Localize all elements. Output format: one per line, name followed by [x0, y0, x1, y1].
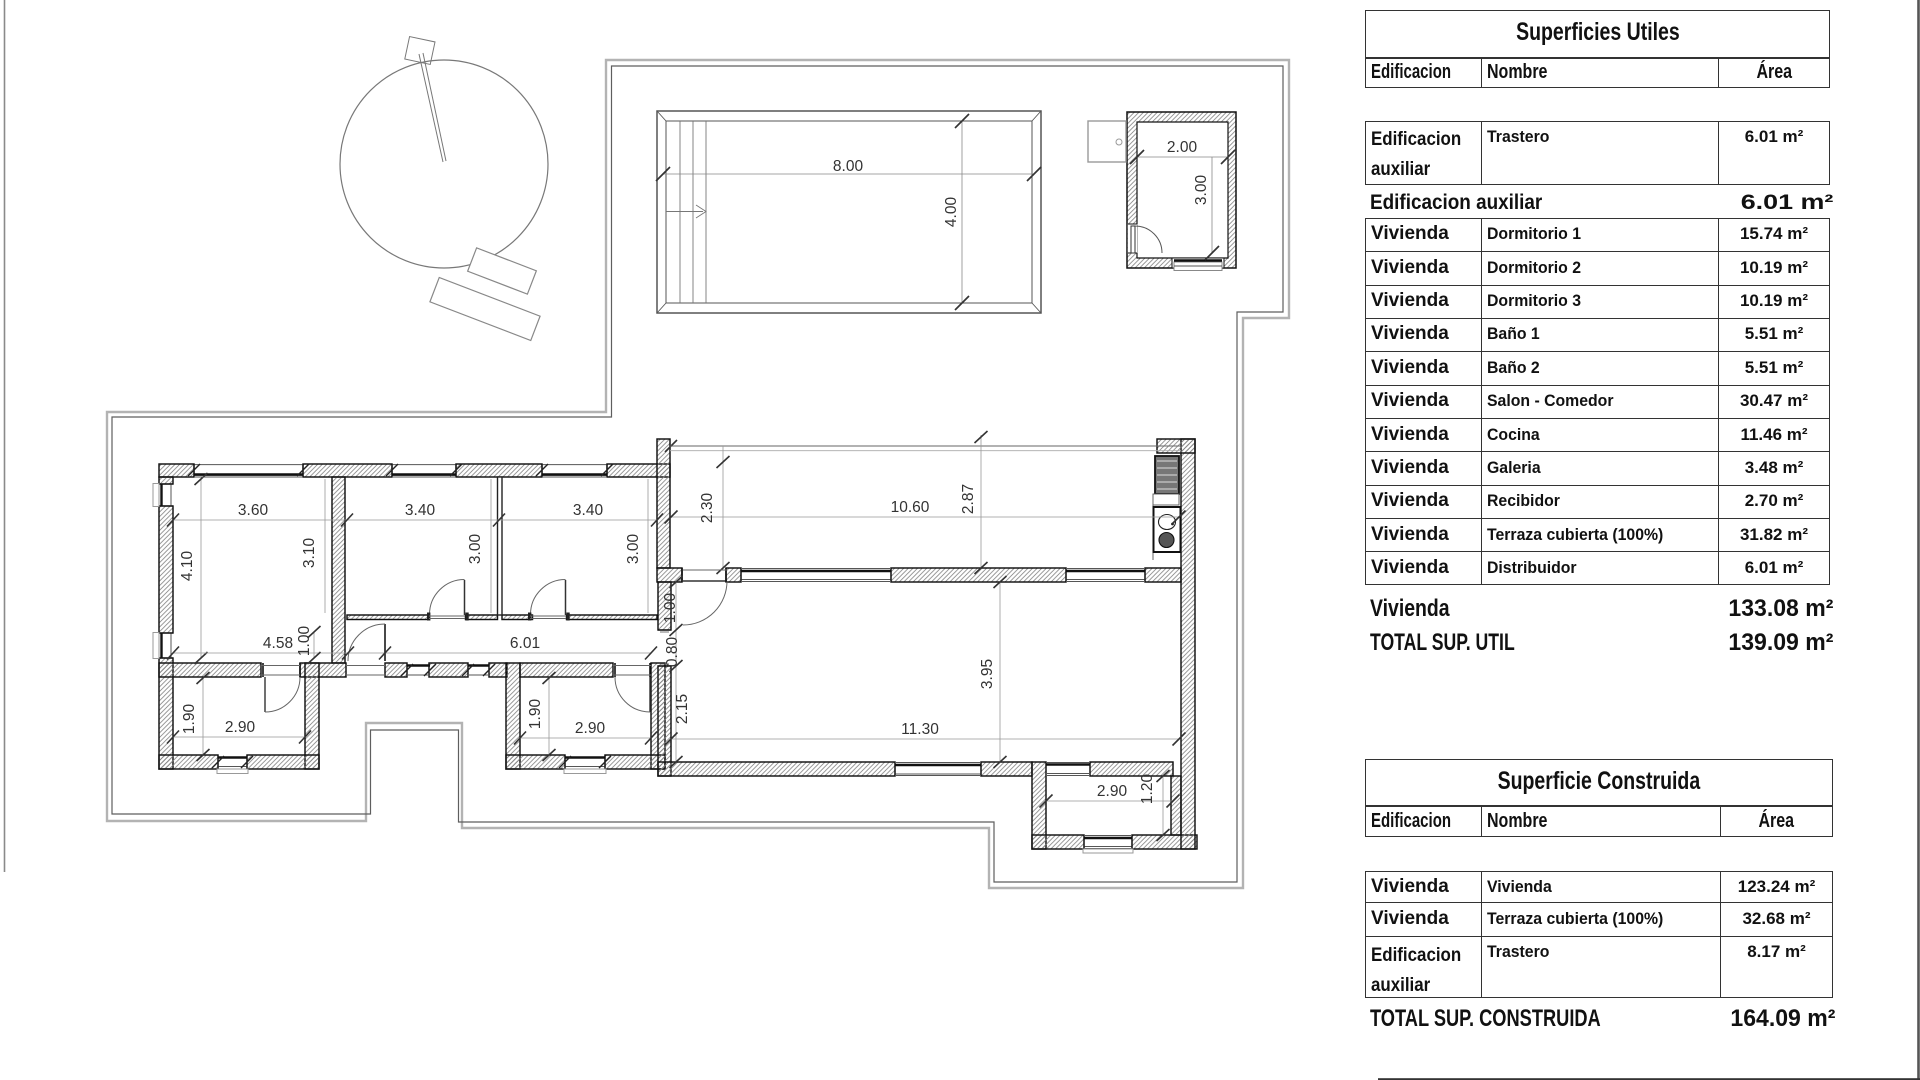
svg-text:2.15: 2.15	[674, 694, 691, 724]
svg-text:2.00: 2.00	[1167, 139, 1198, 156]
svg-text:4.10: 4.10	[179, 551, 196, 582]
svg-text:3.40: 3.40	[405, 502, 436, 519]
svg-text:1.20: 1.20	[1139, 774, 1156, 805]
svg-text:8.00: 8.00	[833, 158, 864, 175]
svg-text:4.58: 4.58	[263, 635, 293, 652]
svg-text:2.87: 2.87	[960, 484, 977, 514]
svg-text:6.01: 6.01	[510, 635, 540, 652]
svg-text:1.90: 1.90	[527, 699, 544, 730]
svg-text:3.00: 3.00	[1193, 175, 1210, 206]
svg-text:2.90: 2.90	[225, 719, 256, 736]
svg-text:3.00: 3.00	[467, 534, 484, 565]
svg-text:1.00: 1.00	[662, 593, 679, 624]
svg-text:11.30: 11.30	[901, 721, 939, 738]
svg-text:2.90: 2.90	[575, 720, 606, 737]
svg-text:1.00: 1.00	[296, 626, 313, 657]
svg-text:3.40: 3.40	[573, 502, 604, 519]
svg-text:3.95: 3.95	[979, 659, 996, 689]
svg-text:2.90: 2.90	[1097, 783, 1128, 800]
svg-text:3.10: 3.10	[301, 538, 318, 569]
svg-text:2.30: 2.30	[699, 493, 716, 524]
svg-text:0.80: 0.80	[664, 637, 681, 668]
svg-text:3.60: 3.60	[238, 502, 269, 519]
svg-text:3.00: 3.00	[625, 534, 642, 565]
svg-text:4.00: 4.00	[943, 197, 960, 228]
svg-text:1.90: 1.90	[181, 704, 198, 735]
svg-text:10.60: 10.60	[891, 499, 930, 516]
